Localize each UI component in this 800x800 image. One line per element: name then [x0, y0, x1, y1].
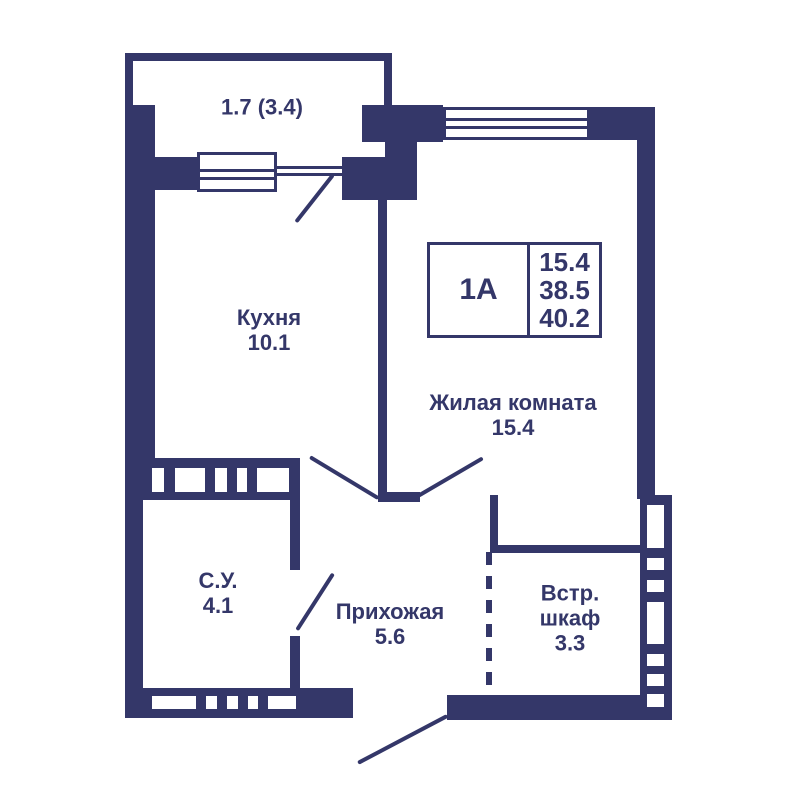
living-room-label: Жилая комната 15.4 [429, 390, 596, 440]
bathroom-name: С.У. [198, 568, 237, 593]
hatch-slot [647, 580, 664, 592]
hatch-slot [206, 696, 217, 709]
wall-living-top-right [588, 107, 655, 140]
living-room-window [443, 107, 590, 140]
balcony-area: 1.7 (3.4) [221, 95, 303, 120]
bathroom-label: С.У. 4.1 [198, 568, 237, 618]
hatch-slot [215, 468, 227, 492]
hatch-slot [647, 654, 664, 666]
closet-dashed-boundary [486, 552, 492, 695]
kitchen-label: Кухня 10.1 [237, 305, 301, 355]
living-room-area: 15.4 [429, 415, 596, 440]
hatch-slot [647, 602, 664, 644]
unit-area: 38.5 [539, 276, 590, 304]
wall-balcony-top [125, 53, 392, 61]
hatch-slot [257, 468, 289, 492]
balcony-door-leaf [294, 174, 334, 224]
hatch-slot [248, 696, 258, 709]
window-glazing-line [199, 177, 275, 180]
kitchen-door-leaf [309, 455, 380, 500]
balcony-label: 1.7 (3.4) [221, 95, 303, 120]
unit-areas: 15.4 38.5 40.2 [530, 245, 599, 335]
wall-closet-top [490, 545, 642, 553]
living-room-name: Жилая комната [429, 390, 596, 415]
unit-info-box: 1А 15.4 38.5 40.2 [427, 242, 602, 338]
balcony-door-threshold-line [277, 166, 342, 169]
hatch-slot [152, 696, 196, 709]
wall-left-upper [125, 105, 155, 465]
wall-junction-connector [385, 110, 417, 200]
wall-partition-stub [378, 492, 420, 502]
kitchen-name: Кухня [237, 305, 301, 330]
kitchen-window [197, 152, 277, 192]
wall-bottom-right [447, 695, 672, 720]
wall-balcony-right [384, 53, 392, 110]
hatch-slot [647, 674, 664, 686]
hatch-slot [152, 468, 164, 492]
unit-living-area: 15.4 [539, 248, 590, 276]
wall-balcony-left [125, 53, 133, 110]
kitchen-area: 10.1 [237, 330, 301, 355]
closet-label: Встр. шкаф 3.3 [540, 581, 601, 656]
hatch-slot [237, 468, 247, 492]
hallway-label: Прихожая 5.6 [336, 599, 445, 649]
unit-type-label: 1А [430, 245, 530, 335]
hatch-slot [647, 505, 664, 548]
closet-name-line1: Встр. [540, 581, 601, 606]
wall-right [637, 107, 655, 499]
bathroom-area: 4.1 [198, 593, 237, 618]
window-glazing-line [445, 118, 588, 121]
wall-kitchen-top [155, 157, 200, 190]
window-glazing-line [199, 169, 275, 172]
closet-area: 3.3 [540, 631, 601, 656]
hatch-slot [268, 696, 296, 709]
unit-total-area: 40.2 [539, 304, 590, 332]
hallway-name: Прихожая [336, 599, 445, 624]
living-door-leaf [417, 456, 484, 497]
closet-name-line2: шкаф [540, 606, 601, 631]
wall-bathroom-right-lower [290, 636, 300, 690]
wall-kitchen-living-partition [378, 193, 387, 498]
wall-closet-left [490, 495, 498, 552]
wall-left-lower [125, 460, 143, 718]
hatch-slot [647, 694, 664, 707]
entrance-door-leaf [357, 714, 448, 765]
floor-plan: 1А 15.4 38.5 40.2 1.7 (3.4) Кухня 10.1 Ж… [0, 0, 800, 800]
hatch-slot [227, 696, 238, 709]
bathroom-door-leaf [295, 573, 335, 632]
window-glazing-line [445, 126, 588, 129]
hatch-slot [647, 558, 664, 570]
hatch-slot [175, 468, 205, 492]
hallway-area: 5.6 [336, 624, 445, 649]
